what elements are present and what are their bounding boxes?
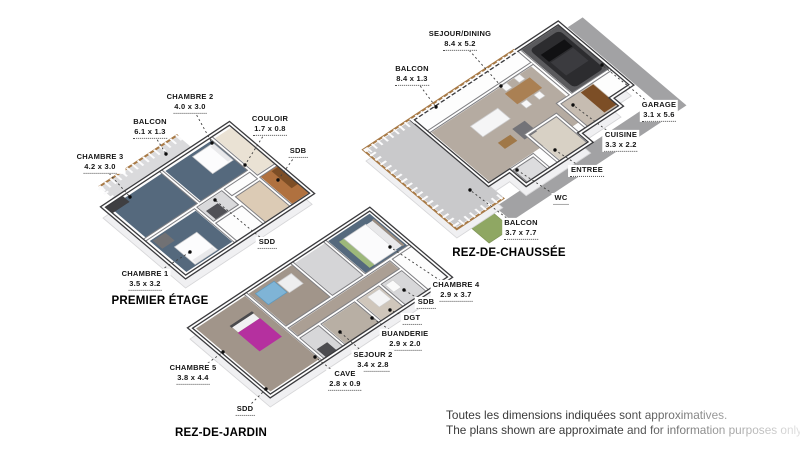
room-label-sdb-p3: SDB [415,297,438,309]
floorplan-page: CHAMBRE 2 4.0 x 3.0 BALCON 6.1 x 1.3 CHA… [0,0,800,450]
floor-title-rez-de-jardin: REZ-DE-JARDIN [175,427,267,439]
room-label-sdb-p1: SDB [287,146,310,158]
room-label-chambre5: CHAMBRE 5 3.8 x 4.4 [168,363,219,385]
room-label-wc: WC [552,193,571,205]
room-label-dgt: DGT [401,313,424,325]
rez-de-chaussee-illustration [363,17,691,243]
floor-title-rez-de-chaussee: REZ-DE-CHAUSSÉE [452,247,566,259]
floor-title-premier-etage: PREMIER ÉTAGE [112,295,209,307]
room-label-chambre2: CHAMBRE 2 4.0 x 3.0 [165,92,216,114]
room-label-garage: GARAGE 3.1 x 5.6 [640,100,678,122]
room-label-buanderie: BUANDERIE 2.9 x 2.0 [380,329,431,351]
room-label-cave: CAVE 2.8 x 0.9 [326,369,363,391]
room-label-sdd-p1: SDD [256,237,279,249]
premier-etage-illustration [88,111,312,288]
room-label-balcon-p1: BALCON 6.1 x 1.3 [131,117,169,139]
room-label-entree: ENTREE [568,165,606,177]
room-label-chambre4: CHAMBRE 4 2.9 x 3.7 [431,280,482,302]
room-label-chambre3: CHAMBRE 3 4.2 x 3.0 [75,152,126,174]
room-label-sdd-p3: SDD [234,404,257,416]
room-label-chambre1: CHAMBRE 1 3.5 x 3.2 [120,269,171,291]
disclaimer-fade-overlay [610,404,800,448]
room-label-couloir: COULOIR 1.7 x 0.8 [250,114,290,136]
room-label-cuisine: CUISINE 3.3 x 2.2 [602,130,639,152]
room-label-balcon-strip: BALCON 8.4 x 1.3 [393,64,431,86]
room-label-balcon-terrace: BALCON 3.7 x 7.7 [502,218,540,240]
room-label-sejour-dining: SEJOUR/DINING 8.4 x 5.2 [427,29,493,51]
